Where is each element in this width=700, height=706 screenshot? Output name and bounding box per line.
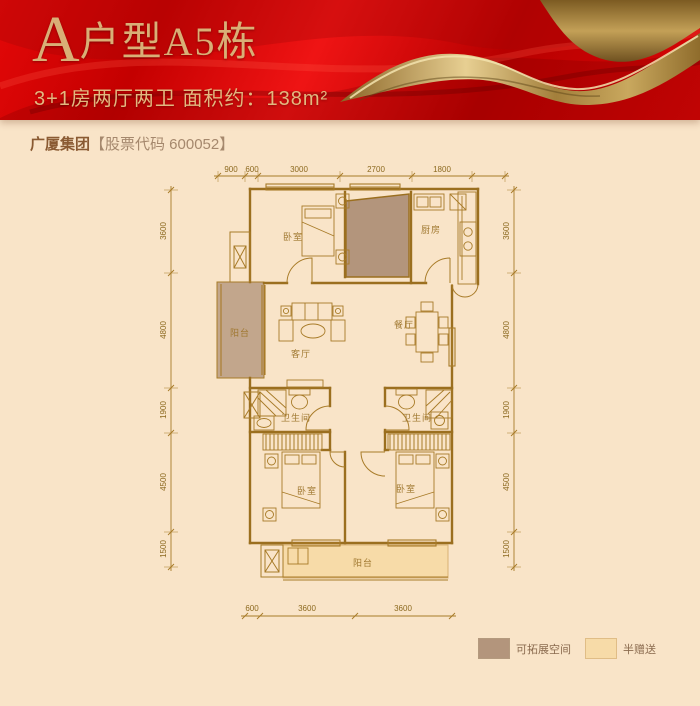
label-balcony-bottom: 阳台 <box>353 557 373 568</box>
dim-right-3: 4500 <box>502 473 511 491</box>
dim-right-1: 4800 <box>502 321 511 339</box>
header-banner: A户型A5栋 3+1房两厅两卫 面积约：138m² <box>0 0 700 120</box>
bed-top <box>302 194 349 264</box>
page-title: A户型A5栋 <box>32 4 259 76</box>
label-living: 客厅 <box>291 348 311 359</box>
label-bedroom-left: 卧室 <box>297 485 317 496</box>
dim-left-0: 3600 <box>159 222 168 240</box>
floorplan: 卧室 厨房 阳台 客厅 餐厅 卫生间 卫生间 卧室 卧室 阳台 900 600 … <box>150 145 570 620</box>
dim-bottom-0: 600 <box>245 604 259 613</box>
expandable-space-area <box>346 194 409 277</box>
dim-left-4: 1500 <box>159 540 168 558</box>
label-bath-left: 卫生间 <box>281 412 311 423</box>
dim-right-0: 3600 <box>502 222 511 240</box>
dim-left-3: 4500 <box>159 473 168 491</box>
dim-top-4: 1800 <box>433 165 451 174</box>
label-balcony-left: 阳台 <box>230 327 250 338</box>
dim-right-4: 1500 <box>502 540 511 558</box>
dim-top-1: 600 <box>245 165 259 174</box>
subtitle: 3+1房两厅两卫 面积约：138m² <box>34 82 328 111</box>
legend: 可拓展空间 半赠送 <box>478 638 656 659</box>
wardrobe-left <box>263 434 322 450</box>
shaded-areas <box>217 194 448 578</box>
bath-left-fixtures <box>254 389 310 430</box>
legend-label-halfgift: 半赠送 <box>623 641 656 657</box>
label-bedroom-top: 卧室 <box>283 231 303 242</box>
legend-swatch-expandable <box>478 638 510 659</box>
label-bedroom-right: 卧室 <box>396 483 416 494</box>
label-kitchen: 厨房 <box>421 224 441 235</box>
legend-label-expandable: 可拓展空间 <box>516 641 571 657</box>
legend-swatch-halfgift <box>585 638 617 659</box>
kitchen-fixtures <box>414 192 476 284</box>
sofa-set <box>279 303 345 387</box>
label-bath-right: 卫生间 <box>402 412 432 423</box>
wardrobe-right <box>388 434 450 450</box>
dim-bottom-1: 3600 <box>298 604 316 613</box>
title-text: 户型A5栋 <box>80 19 259 64</box>
bath-right-fixtures <box>396 389 452 429</box>
brand-name: 广厦集团 <box>30 136 90 153</box>
dim-left-1: 4800 <box>159 321 168 339</box>
dim-top-0: 900 <box>224 165 238 174</box>
dim-left-2: 1900 <box>159 401 168 419</box>
dim-top-3: 2700 <box>367 165 385 174</box>
windows <box>221 184 455 580</box>
dim-bottom-2: 3600 <box>394 604 412 613</box>
title-letter: A <box>32 3 80 76</box>
dining-set <box>406 302 448 362</box>
dim-right-2: 1900 <box>502 401 511 419</box>
dim-top-2: 3000 <box>290 165 308 174</box>
label-dining: 餐厅 <box>394 319 414 330</box>
